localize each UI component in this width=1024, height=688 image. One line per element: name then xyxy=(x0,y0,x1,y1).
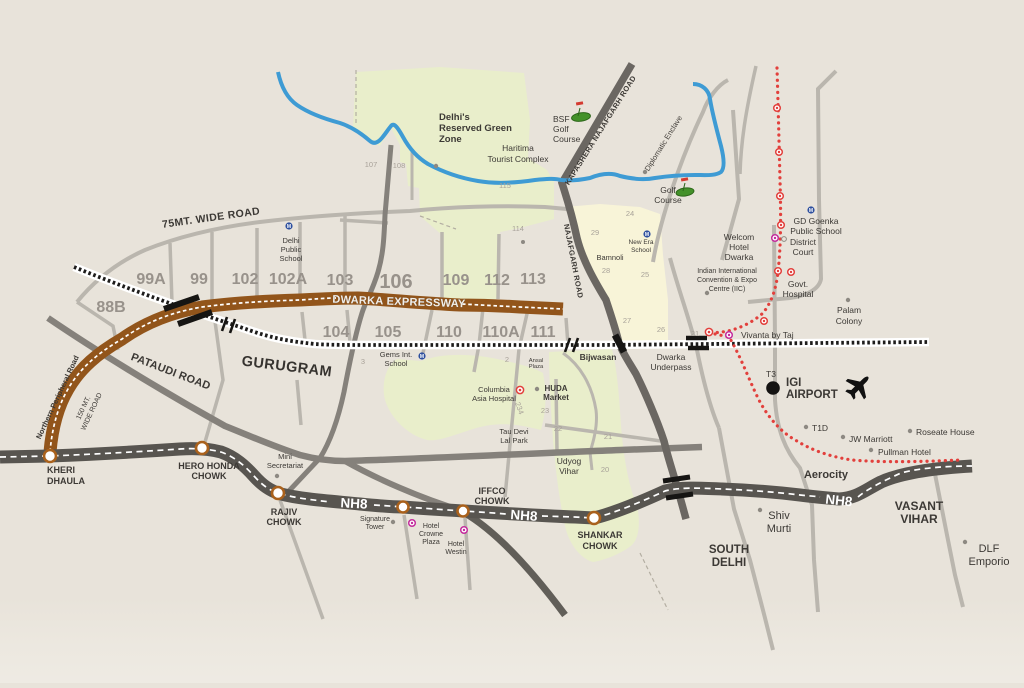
svg-text:CHOWK: CHOWK xyxy=(583,541,618,551)
svg-text:NH8: NH8 xyxy=(510,507,538,524)
svg-text:RAJIV: RAJIV xyxy=(271,507,298,517)
svg-text:Tourist Complex: Tourist Complex xyxy=(488,154,550,164)
svg-text:Course: Course xyxy=(654,195,682,205)
svg-text:BSF: BSF xyxy=(553,114,570,124)
svg-text:VIHAR: VIHAR xyxy=(900,512,938,526)
svg-text:Roseate House: Roseate House xyxy=(916,427,975,437)
svg-text:Aerocity: Aerocity xyxy=(804,469,849,481)
svg-text:Underpass: Underpass xyxy=(650,362,691,372)
svg-text:24: 24 xyxy=(626,209,634,218)
svg-text:Hotel: Hotel xyxy=(729,242,749,252)
svg-text:Murti: Murti xyxy=(767,523,791,535)
svg-text:Bamnoli: Bamnoli xyxy=(596,253,623,262)
svg-text:Hospital: Hospital xyxy=(783,289,814,299)
svg-text:114: 114 xyxy=(512,224,524,233)
svg-text:Emporio: Emporio xyxy=(969,556,1010,568)
svg-text:IFFCO: IFFCO xyxy=(479,486,506,496)
svg-text:21: 21 xyxy=(604,432,612,441)
svg-text:School: School xyxy=(385,359,408,368)
svg-text:School: School xyxy=(280,254,303,263)
svg-text:DLF: DLF xyxy=(979,543,1000,555)
svg-text:104: 104 xyxy=(323,324,350,341)
svg-text:107: 107 xyxy=(365,160,378,169)
svg-text:Palam: Palam xyxy=(837,305,861,315)
svg-text:GD Goenka: GD Goenka xyxy=(794,216,839,226)
svg-text:99A: 99A xyxy=(136,271,166,288)
svg-text:M: M xyxy=(420,354,424,360)
svg-text:Signature: Signature xyxy=(360,516,390,523)
svg-text:105: 105 xyxy=(375,324,402,341)
svg-text:Golf: Golf xyxy=(553,124,569,134)
svg-text:20: 20 xyxy=(601,465,609,474)
svg-text:CHOWK: CHOWK xyxy=(267,517,302,527)
svg-text:Delhi: Delhi xyxy=(282,236,299,245)
svg-text:Mini: Mini xyxy=(278,452,292,461)
svg-text:SOUTH: SOUTH xyxy=(709,544,749,556)
svg-text:Gems Int.: Gems Int. xyxy=(380,350,413,359)
svg-text:Westin: Westin xyxy=(445,549,466,556)
svg-text:Hotel: Hotel xyxy=(423,523,440,530)
svg-text:111: 111 xyxy=(531,324,556,341)
svg-text:DELHI: DELHI xyxy=(712,557,747,569)
svg-text:HERO HONDA: HERO HONDA xyxy=(178,461,240,471)
svg-text:22: 22 xyxy=(554,424,562,433)
svg-text:106: 106 xyxy=(379,271,412,293)
svg-text:Welcom: Welcom xyxy=(724,232,755,242)
svg-text:102: 102 xyxy=(232,271,259,288)
svg-text:Columbia: Columbia xyxy=(478,385,511,394)
svg-text:25: 25 xyxy=(641,270,649,279)
svg-text:DHAULA: DHAULA xyxy=(47,476,85,486)
svg-text:M: M xyxy=(645,232,649,238)
svg-text:CHOWK: CHOWK xyxy=(475,496,510,506)
svg-text:27: 27 xyxy=(623,316,631,325)
svg-text:103: 103 xyxy=(327,272,354,289)
svg-text:Market: Market xyxy=(543,393,569,402)
svg-text:99: 99 xyxy=(190,271,208,288)
svg-text:Udyog: Udyog xyxy=(557,456,582,466)
svg-text:3: 3 xyxy=(361,357,365,366)
svg-text:NH8: NH8 xyxy=(340,495,368,511)
svg-text:Secretariat: Secretariat xyxy=(267,461,304,470)
svg-text:School: School xyxy=(631,247,651,254)
svg-text:T3: T3 xyxy=(766,369,776,379)
svg-text:Bijwasan: Bijwasan xyxy=(580,352,617,362)
svg-text:108: 108 xyxy=(393,161,406,170)
svg-text:102A: 102A xyxy=(269,271,308,288)
svg-text:SHANKAR: SHANKAR xyxy=(578,530,624,540)
svg-text:23: 23 xyxy=(541,406,549,415)
svg-text:M: M xyxy=(809,208,813,214)
svg-text:Plaza: Plaza xyxy=(529,364,544,370)
svg-text:IGI: IGI xyxy=(786,377,801,389)
svg-text:HUDA: HUDA xyxy=(544,384,567,393)
svg-text:Shiv: Shiv xyxy=(768,510,790,522)
svg-text:Haritima: Haritima xyxy=(502,143,534,153)
svg-text:NH8: NH8 xyxy=(825,492,854,510)
svg-text:Hotel: Hotel xyxy=(448,541,465,548)
svg-text:Public: Public xyxy=(281,245,302,254)
svg-text:Crowne: Crowne xyxy=(419,531,443,538)
svg-text:KHERI: KHERI xyxy=(47,465,75,475)
svg-text:Delhi's: Delhi's xyxy=(439,112,470,123)
svg-text:109: 109 xyxy=(443,272,470,289)
svg-text:Golf: Golf xyxy=(660,185,676,195)
svg-text:Zone: Zone xyxy=(439,134,462,145)
svg-text:21: 21 xyxy=(691,329,699,338)
svg-text:112: 112 xyxy=(484,272,510,289)
svg-text:Court: Court xyxy=(793,247,814,257)
svg-text:VASANT: VASANT xyxy=(895,499,944,513)
svg-text:Asia Hospital: Asia Hospital xyxy=(472,394,516,403)
svg-text:Lal Park: Lal Park xyxy=(500,436,528,445)
svg-text:Centre (IIC): Centre (IIC) xyxy=(709,286,746,293)
svg-text:113: 113 xyxy=(520,271,546,288)
svg-text:Indian International: Indian International xyxy=(697,268,757,275)
svg-text:M: M xyxy=(287,224,291,230)
svg-text:AIRPORT: AIRPORT xyxy=(786,389,838,401)
svg-text:110A: 110A xyxy=(482,324,520,341)
svg-text:88B: 88B xyxy=(96,299,125,316)
svg-text:Tau Devi: Tau Devi xyxy=(499,427,529,436)
svg-text:Public School: Public School xyxy=(790,226,842,236)
svg-text:Govt.: Govt. xyxy=(788,279,808,289)
svg-text:Course: Course xyxy=(553,134,581,144)
svg-text:Reserved Green: Reserved Green xyxy=(439,123,512,134)
svg-text:New Era: New Era xyxy=(629,239,654,246)
svg-text:District: District xyxy=(790,237,817,247)
svg-text:CHOWK: CHOWK xyxy=(192,471,227,481)
svg-text:2: 2 xyxy=(505,355,509,364)
svg-text:Dwarka: Dwarka xyxy=(725,252,754,262)
svg-text:JW Marriott: JW Marriott xyxy=(849,434,893,444)
svg-text:29: 29 xyxy=(591,228,599,237)
svg-text:Plaza: Plaza xyxy=(422,539,440,546)
svg-text:26: 26 xyxy=(657,325,665,334)
svg-text:Colony: Colony xyxy=(836,316,863,326)
svg-text:Tower: Tower xyxy=(366,524,385,531)
svg-text:115: 115 xyxy=(499,181,511,190)
svg-text:T1D: T1D xyxy=(812,423,828,433)
svg-text:Vivanta by Taj: Vivanta by Taj xyxy=(741,330,794,340)
svg-text:Pullman Hotel: Pullman Hotel xyxy=(878,447,931,457)
svg-text:110: 110 xyxy=(436,324,462,341)
svg-text:Dwarka: Dwarka xyxy=(657,352,686,362)
svg-text:Convention & Expo: Convention & Expo xyxy=(697,277,757,284)
svg-text:28: 28 xyxy=(602,266,610,275)
svg-text:Vihar: Vihar xyxy=(559,466,579,476)
